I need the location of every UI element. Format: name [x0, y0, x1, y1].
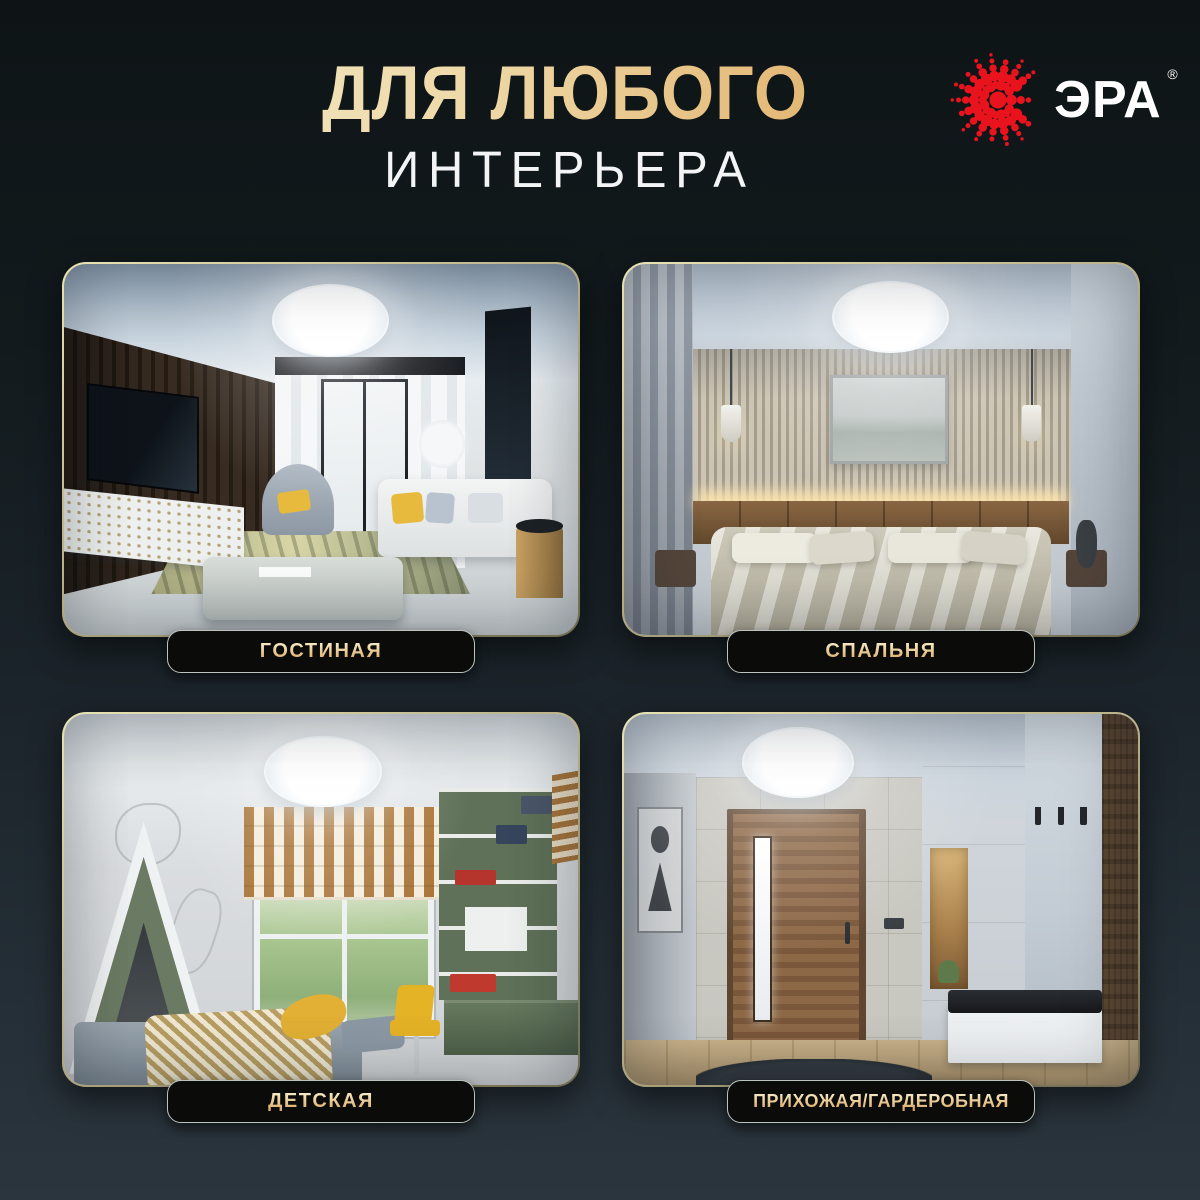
era-brand-text: ЭРА: [1054, 71, 1162, 129]
photo-frame: [622, 262, 1140, 637]
ceiling-light: [264, 736, 381, 807]
era-starburst-icon: [946, 48, 1050, 152]
door-handle: [845, 922, 850, 944]
bed: [711, 527, 1050, 635]
pendant-cord-left: [730, 349, 732, 408]
room-label-badge: ДЕТСКАЯ: [167, 1080, 475, 1123]
ceiling-light: [272, 284, 389, 357]
pendant-lamp-left: [721, 405, 741, 442]
photo-frame: [62, 712, 580, 1087]
vase: [1076, 520, 1097, 568]
bedroom-photo: [624, 264, 1138, 635]
room-card-living: ГОСТИНАЯ: [62, 262, 580, 637]
room-label-badge: ГОСТИНАЯ: [167, 630, 475, 673]
registered-mark: ®: [1167, 66, 1177, 82]
photo-frame: [622, 712, 1140, 1087]
title-line-2: ИНТЕРЬЕРА: [23, 144, 1108, 195]
room-label: ДЕТСКАЯ: [268, 1090, 374, 1113]
wall-art: [830, 375, 948, 464]
ceiling-light: [832, 281, 949, 354]
striped-roman-blind: [244, 807, 444, 900]
wood-panel-column: [1102, 714, 1138, 1085]
coat-hooks: [1035, 807, 1086, 826]
room-card-kids: ДЕТСКАЯ: [62, 712, 580, 1087]
ottoman: [203, 557, 403, 620]
green-shelving: [439, 788, 557, 999]
second-blind: [552, 771, 578, 865]
room-label-badge: ПРИХОЖАЯ/ГАРДЕРОБНАЯ: [727, 1080, 1035, 1123]
room-card-bedroom: СПАЛЬНЯ: [622, 262, 1140, 637]
era-brand: ЭРА ®: [1054, 70, 1162, 130]
toy-box: [496, 825, 527, 844]
window-header: [275, 357, 465, 376]
hallway-photo: [624, 714, 1138, 1085]
armchair: [262, 464, 334, 534]
abstract-art: [637, 807, 683, 933]
toy-truck: [450, 974, 496, 993]
toy-train: [455, 870, 496, 885]
room-label-badge: СПАЛЬНЯ: [727, 630, 1035, 673]
kids-room-photo: [64, 714, 578, 1085]
rooms-grid: ГОСТИНАЯ: [62, 262, 1140, 1087]
ceiling-light: [742, 727, 854, 798]
nightstand-left: [655, 550, 696, 587]
pendant-cord-right: [1031, 349, 1033, 408]
title-line-1: ДЛЯ ЛЮБОГО: [57, 56, 1074, 132]
lit-niche: [930, 848, 969, 989]
room-label: СПАЛЬНЯ: [825, 640, 936, 663]
photo-frame: [62, 262, 580, 637]
umbrella-floor-lamp: [419, 420, 465, 468]
green-desk: [444, 1000, 578, 1056]
yellow-chair: [383, 985, 455, 1074]
storage-basket: [521, 796, 552, 815]
room-label: ПРИХОЖАЯ/ГАРДЕРОБНАЯ: [753, 1091, 1009, 1112]
pendant-lamp-right: [1022, 405, 1042, 442]
room-label: ГОСТИНАЯ: [260, 640, 382, 663]
bench-cushion: [948, 990, 1102, 1012]
tv-screen: [87, 383, 199, 493]
shelf-niche: [465, 907, 527, 952]
era-logo: ЭРА ®: [946, 44, 1156, 156]
door-glass-insert: [753, 836, 773, 1022]
living-room-photo: [64, 264, 578, 635]
switch-panel: [884, 918, 905, 929]
gold-side-table: [516, 524, 562, 598]
promo-banner: ДЛЯ ЛЮБОГО ИНТЕРЬЕРА ЭРА ®: [0, 0, 1200, 1200]
room-card-hallway: ПРИХОЖАЯ/ГАРДЕРОБНАЯ: [622, 712, 1140, 1087]
